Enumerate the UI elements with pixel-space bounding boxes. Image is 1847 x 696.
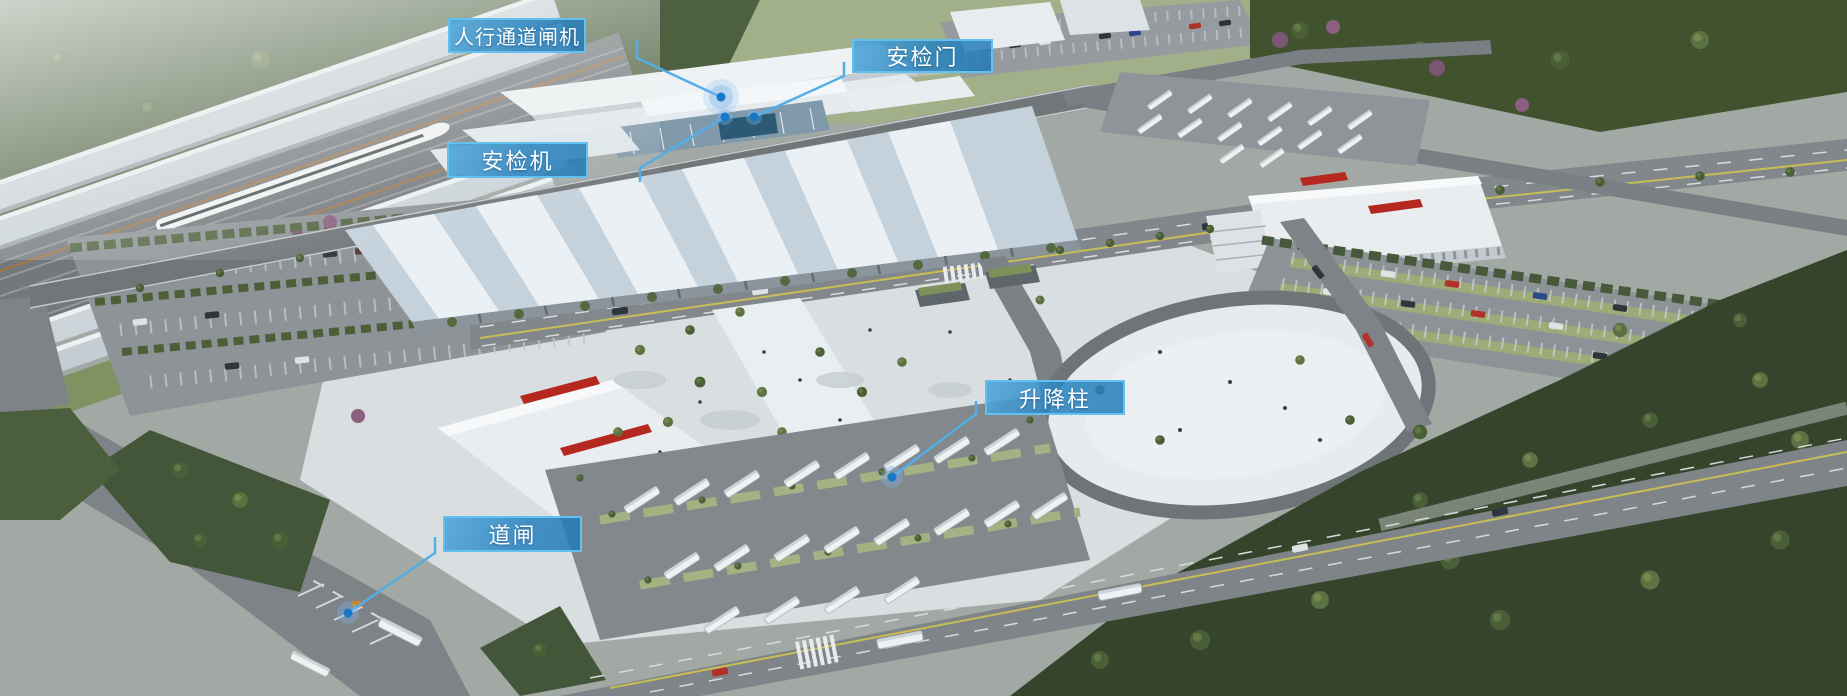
- callout-label: 道闸: [488, 518, 536, 550]
- callout-label: 升降柱: [1019, 382, 1091, 414]
- callout-label: 安检门: [886, 40, 958, 72]
- render-background: [0, 0, 1847, 696]
- callout-lift-bollard: 升降柱: [985, 380, 1125, 415]
- callout-pedestrian-turnstile: 人行通道闸机: [448, 18, 586, 53]
- station-aerial-render: 人行通道闸机 安检门 安检机 升降柱 道闸: [0, 0, 1847, 696]
- callout-label: 人行通道闸机: [454, 21, 580, 50]
- callout-security-door: 安检门: [852, 39, 993, 73]
- barrier-gate-kiosk: [352, 601, 361, 607]
- callout-road-barrier: 道闸: [443, 516, 582, 552]
- callout-security-scanner: 安检机: [447, 142, 588, 178]
- callout-label: 安检机: [481, 144, 553, 176]
